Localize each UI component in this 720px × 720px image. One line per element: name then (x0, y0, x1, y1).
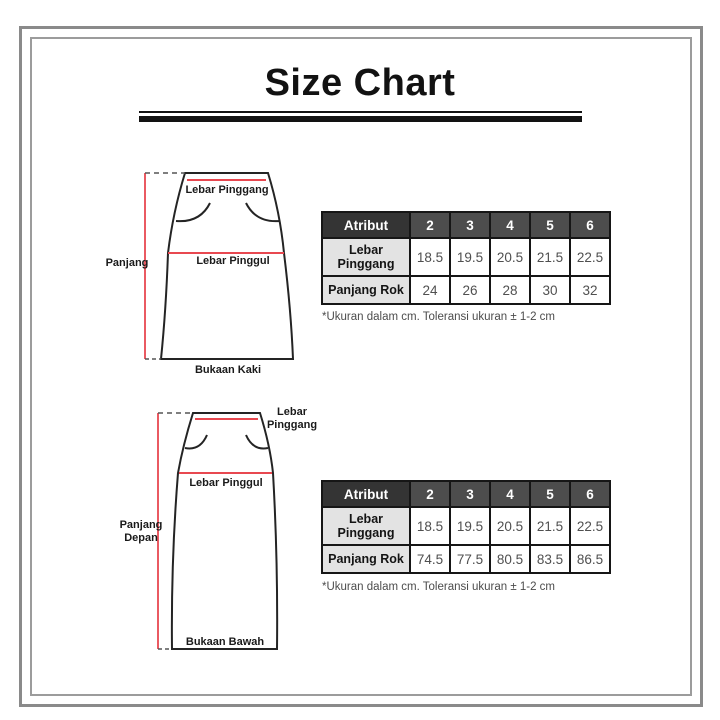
diagram2-opening-label: Bukaan Bawah (169, 636, 281, 649)
table2-footnote: *Ukuran dalam cm. Toleransi ukuran ± 1-2… (322, 581, 555, 593)
value-cell: 20.5 (490, 507, 530, 545)
size-chart-graphic: Size Chart Lebar Pinggang Lebar Pinggul … (0, 0, 720, 720)
value-cell: 30 (530, 276, 570, 304)
size-header-cell: 2 (410, 212, 450, 238)
diagram2-waist-label: Lebar Pinggang (266, 406, 318, 432)
size-table-short-skirt: Atribut 2 3 4 5 6 Lebar Pinggang 18.5 19… (321, 211, 611, 305)
table-row: Lebar Pinggang 18.5 19.5 20.5 21.5 22.5 (322, 238, 610, 276)
value-cell: 22.5 (570, 238, 610, 276)
size-header-cell: 6 (570, 212, 610, 238)
attribute-header-cell: Atribut (322, 481, 410, 507)
value-cell: 24 (410, 276, 450, 304)
size-header-cell: 3 (450, 481, 490, 507)
value-cell: 74.5 (410, 545, 450, 573)
table-row: Lebar Pinggang 18.5 19.5 20.5 21.5 22.5 (322, 507, 610, 545)
value-cell: 22.5 (570, 507, 610, 545)
table-row: Panjang Rok 24 26 28 30 32 (322, 276, 610, 304)
size-header-cell: 3 (450, 212, 490, 238)
value-cell: 83.5 (530, 545, 570, 573)
value-cell: 86.5 (570, 545, 610, 573)
table1-footnote: *Ukuran dalam cm. Toleransi ukuran ± 1-2… (322, 311, 555, 323)
row-label-cell: Panjang Rok (322, 276, 410, 304)
size-table-long-skirt: Atribut 2 3 4 5 6 Lebar Pinggang 18.5 19… (321, 480, 611, 574)
diagram1-hip-label: Lebar Pinggul (176, 255, 290, 268)
value-cell: 32 (570, 276, 610, 304)
value-cell: 21.5 (530, 238, 570, 276)
value-cell: 26 (450, 276, 490, 304)
size-header-cell: 4 (490, 212, 530, 238)
size-header-cell: 5 (530, 212, 570, 238)
diagram1-opening-label: Bukaan Kaki (171, 364, 285, 377)
value-cell: 28 (490, 276, 530, 304)
value-cell: 77.5 (450, 545, 490, 573)
diagram2-length-label: Panjang Depan (112, 519, 170, 545)
page-title: Size Chart (0, 62, 720, 105)
size-header-cell: 2 (410, 481, 450, 507)
attribute-header-cell: Atribut (322, 212, 410, 238)
value-cell: 19.5 (450, 238, 490, 276)
size-header-cell: 5 (530, 481, 570, 507)
row-label-cell: Lebar Pinggang (322, 507, 410, 545)
diagram1-length-label: Panjang (103, 257, 151, 270)
value-cell: 19.5 (450, 507, 490, 545)
row-label-cell: Lebar Pinggang (322, 238, 410, 276)
size-header-cell: 6 (570, 481, 610, 507)
diagram2-hip-label: Lebar Pinggul (170, 477, 282, 490)
diagram1-waist-label: Lebar Pinggang (170, 184, 284, 197)
long-skirt-diagram (150, 400, 290, 655)
size-header-cell: 4 (490, 481, 530, 507)
table-header-row: Atribut 2 3 4 5 6 (322, 212, 610, 238)
title-divider-thick-line (139, 116, 582, 122)
table-row: Panjang Rok 74.5 77.5 80.5 83.5 86.5 (322, 545, 610, 573)
value-cell: 18.5 (410, 507, 450, 545)
value-cell: 21.5 (530, 507, 570, 545)
value-cell: 80.5 (490, 545, 530, 573)
table-header-row: Atribut 2 3 4 5 6 (322, 481, 610, 507)
value-cell: 18.5 (410, 238, 450, 276)
value-cell: 20.5 (490, 238, 530, 276)
row-label-cell: Panjang Rok (322, 545, 410, 573)
title-divider-thin-line (139, 111, 582, 113)
